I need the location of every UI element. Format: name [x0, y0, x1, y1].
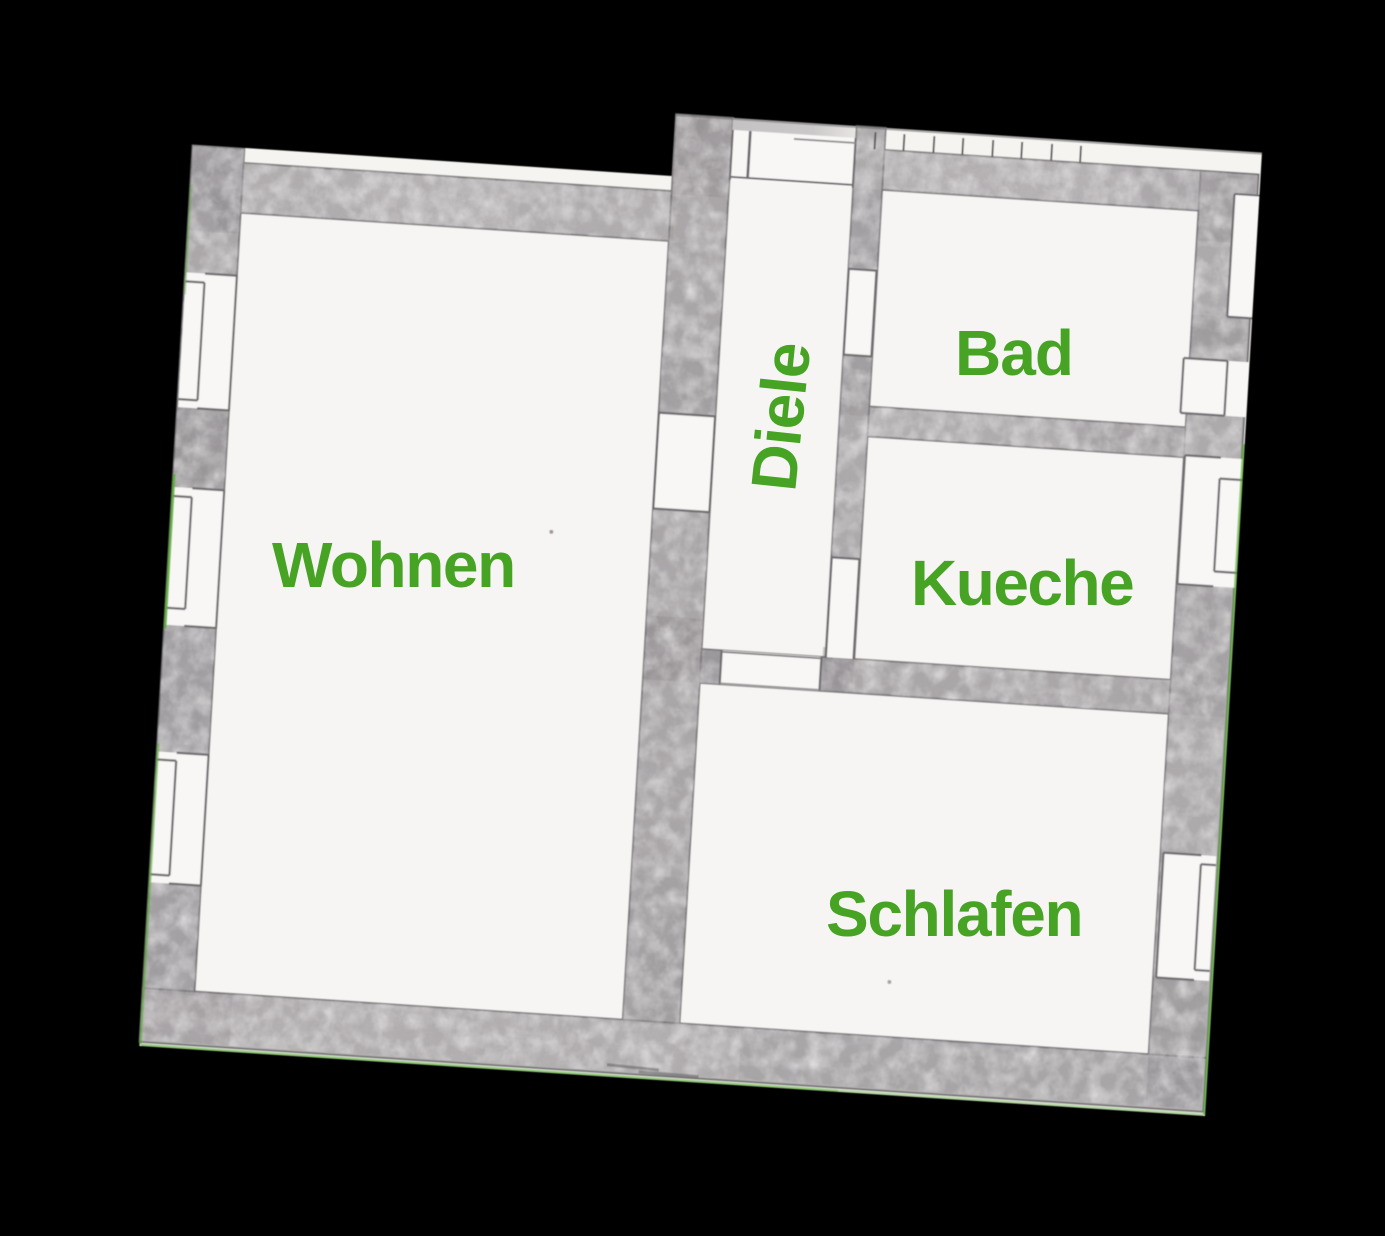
svg-text:Wohnen: Wohnen [272, 529, 515, 601]
svg-text:Bad: Bad [955, 317, 1073, 389]
svg-text:Schlafen: Schlafen [826, 878, 1082, 950]
svg-text:Kueche: Kueche [911, 547, 1133, 619]
svg-text:Diele: Diele [737, 339, 824, 494]
